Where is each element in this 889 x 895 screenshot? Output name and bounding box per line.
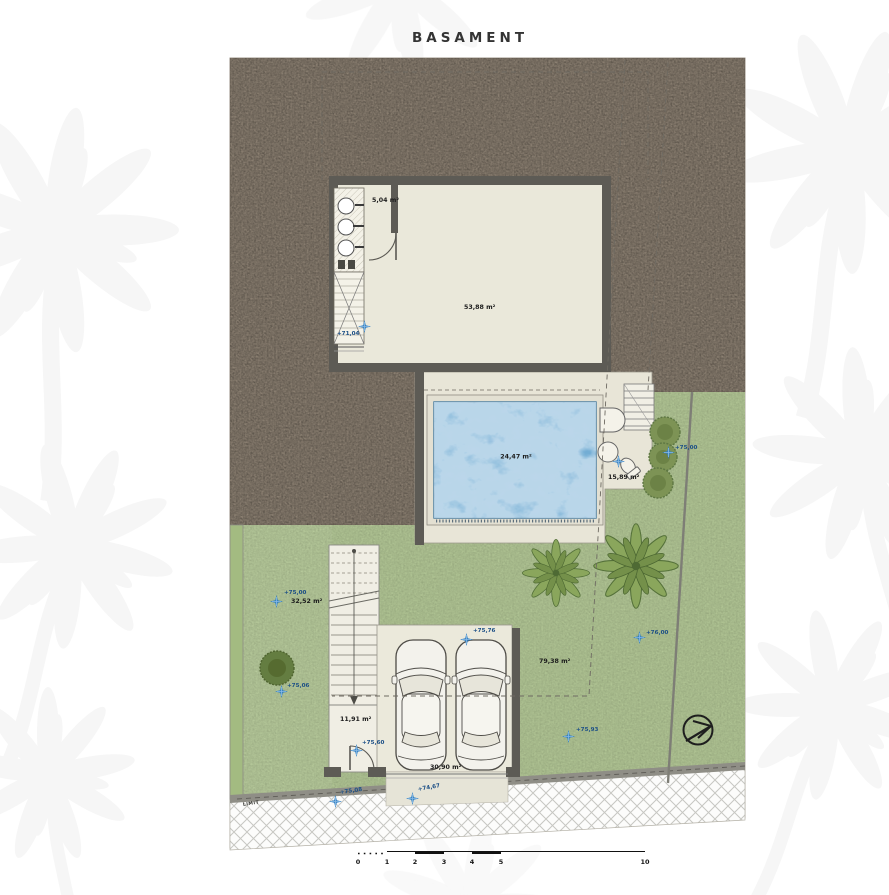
exterior-stairs (329, 545, 379, 772)
scale-bar (358, 851, 645, 854)
utility-strip (334, 188, 364, 351)
palm-tree (594, 524, 678, 608)
palm-tree (522, 539, 589, 606)
car (392, 640, 450, 770)
floor-plan-canvas: BASAMENT (0, 0, 889, 895)
pool (427, 395, 603, 525)
scene-svg (0, 0, 889, 895)
main-building (329, 176, 611, 372)
car (452, 640, 510, 770)
